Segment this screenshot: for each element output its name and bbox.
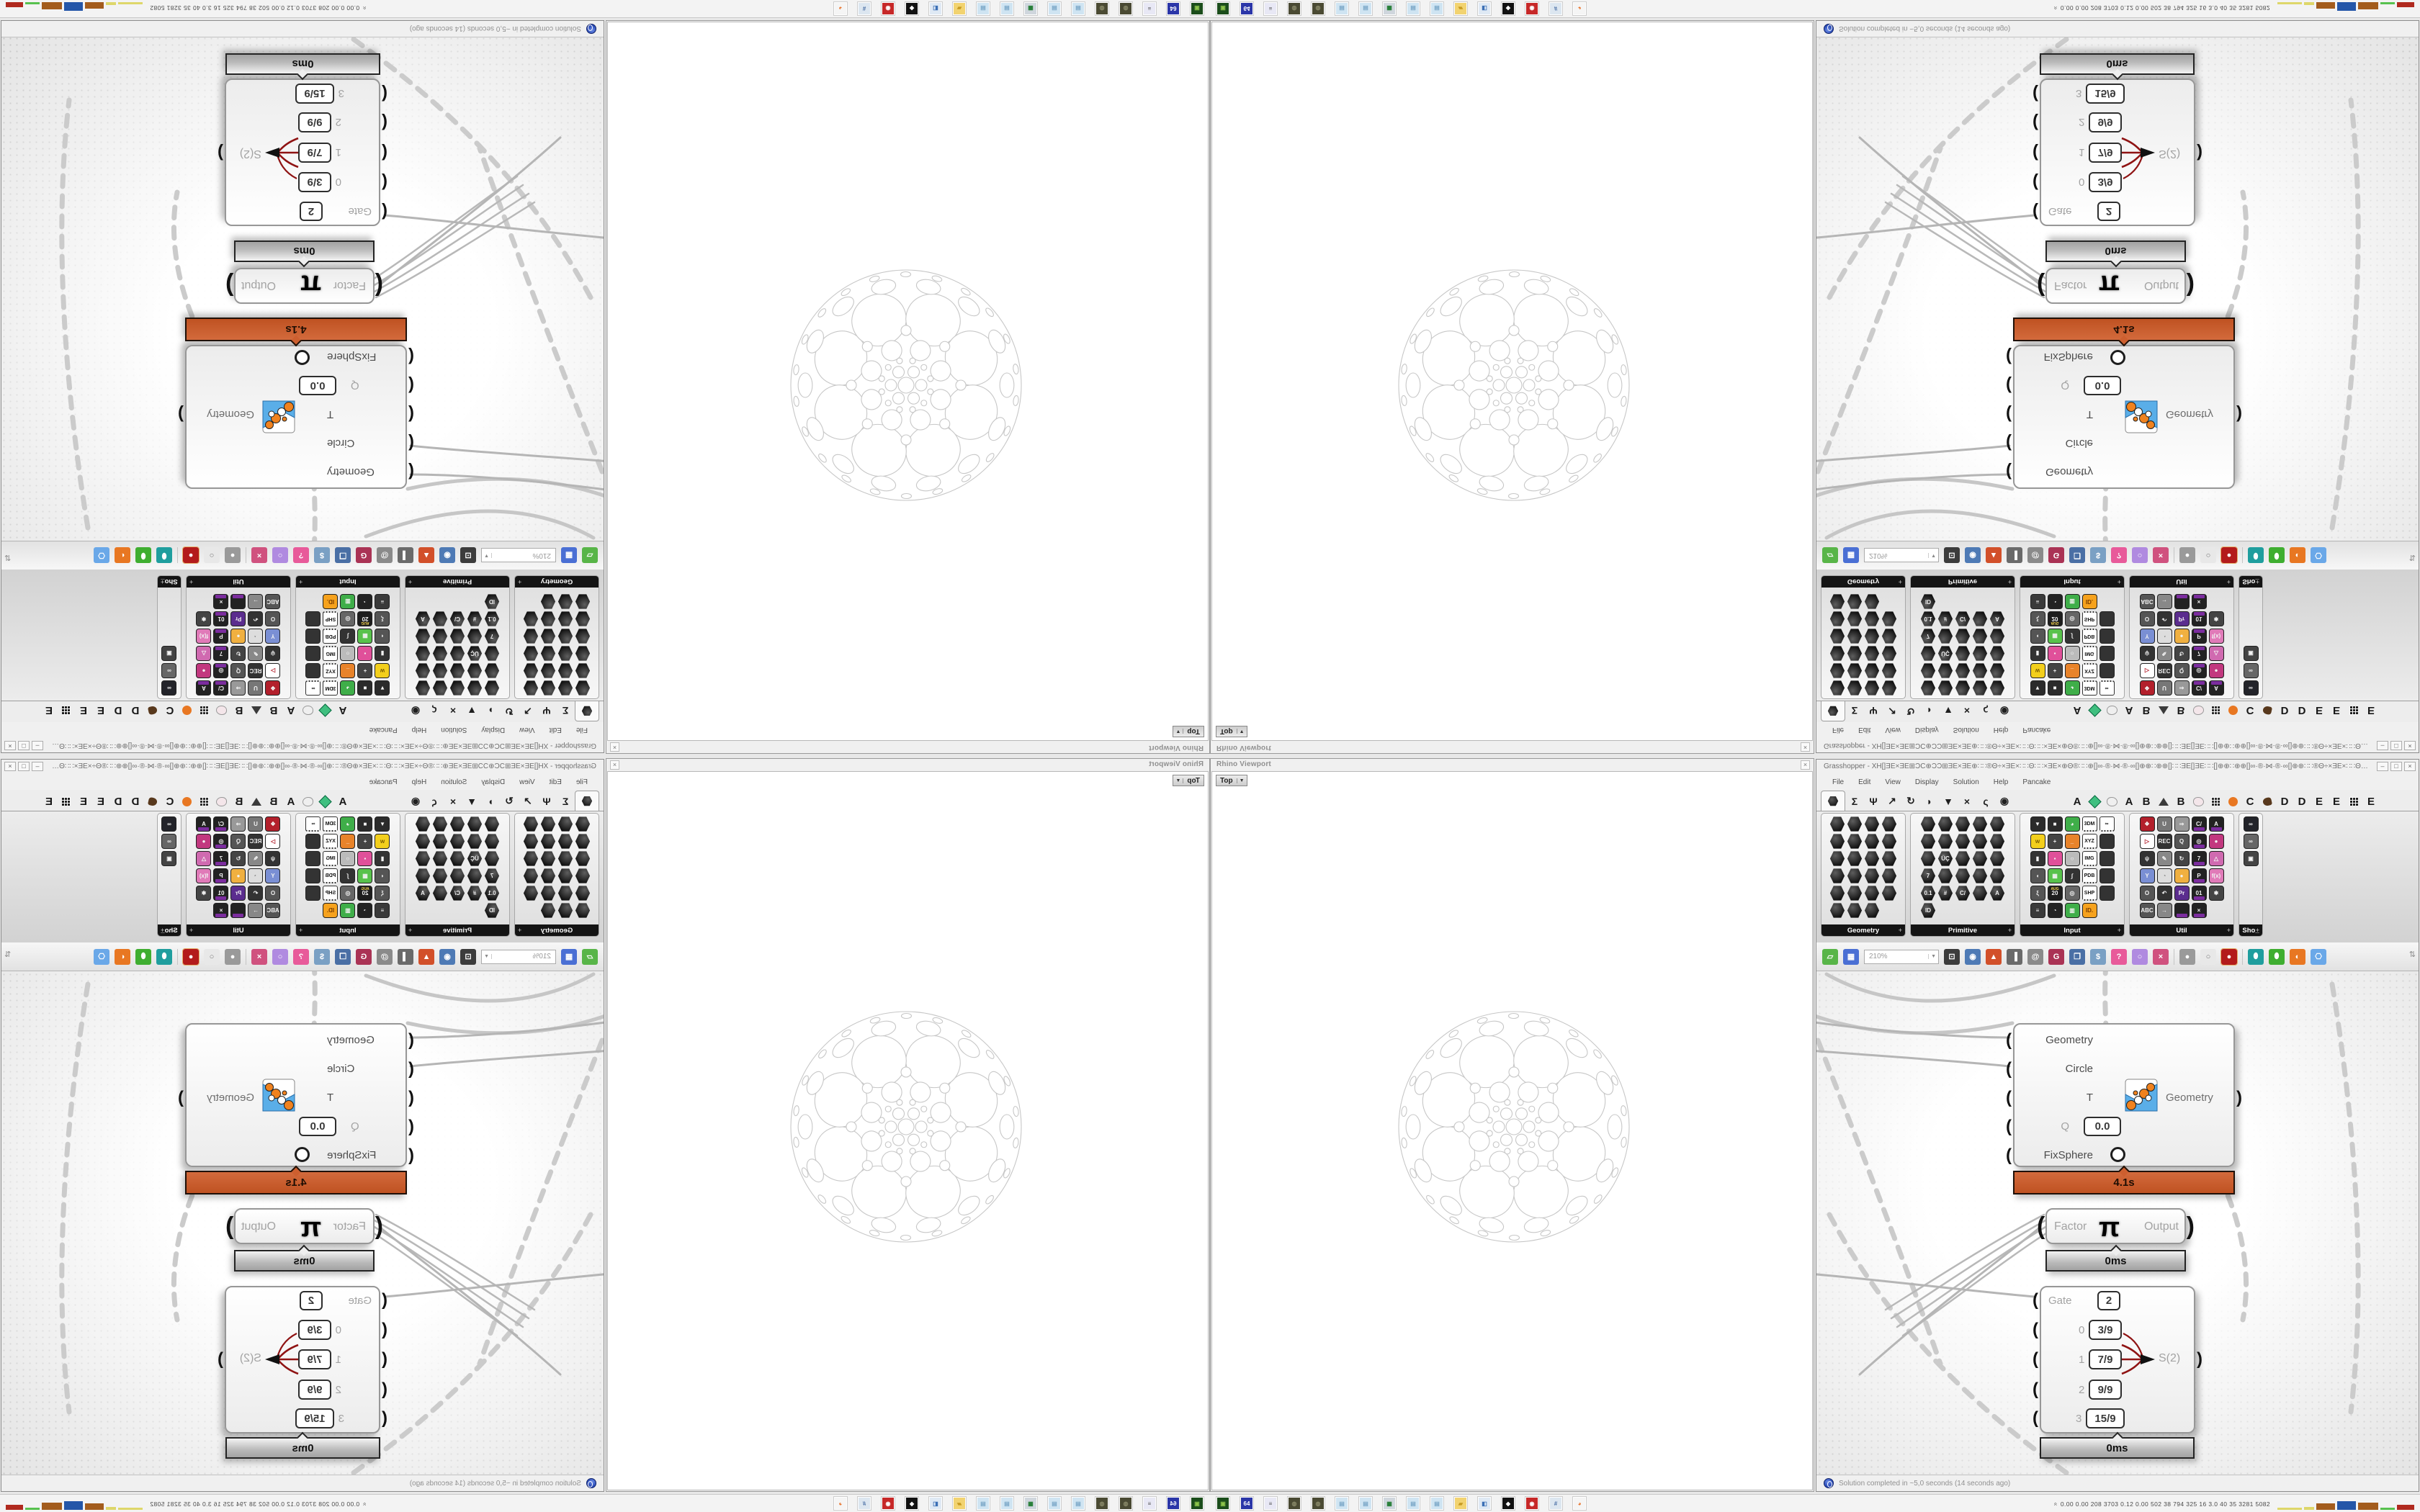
tab-plugin-mountain-icon[interactable] [2155, 795, 2172, 808]
component-icon[interactable]: ↻ [231, 851, 246, 866]
component-icon[interactable] [1882, 629, 1897, 644]
taskbar-monitor-icon[interactable]: ▦ [1023, 1, 1038, 16]
component-icon[interactable]: ◖ [2030, 629, 2045, 644]
component-icon[interactable]: ○ [2065, 646, 2080, 661]
component-icon[interactable] [1847, 903, 1863, 918]
component-icon[interactable]: A [416, 886, 431, 901]
select-green-icon[interactable]: ⬮ [135, 548, 151, 564]
component-icon[interactable] [306, 646, 321, 661]
input-grip-1[interactable]: ( [382, 1351, 387, 1368]
taskbar-notepad3-icon[interactable]: ▤ [1000, 1, 1014, 16]
component-icon[interactable] [1882, 851, 1897, 866]
taskbar-firefox-icon[interactable]: ◕ [1572, 1496, 1587, 1511]
preview-eye-icon[interactable]: ◉ [439, 949, 455, 965]
menu-pancake[interactable]: Pancake [362, 724, 405, 737]
component-icon[interactable] [1973, 629, 1988, 644]
panel-footer-sho[interactable]: Sho_+ [2239, 924, 2262, 936]
input-grip-q[interactable]: ( [2006, 377, 2012, 394]
component-icon[interactable] [1847, 680, 1863, 696]
taskbar-penguin-icon[interactable]: ◆ [905, 1, 919, 16]
component-icon[interactable]: ❖ [2140, 816, 2155, 832]
component-icon[interactable] [433, 834, 448, 849]
save-file-icon[interactable]: ▦ [1843, 949, 1859, 965]
component-icon[interactable] [541, 646, 556, 661]
component-icon[interactable]: Pr [231, 886, 246, 901]
at-icon[interactable]: @ [377, 548, 393, 564]
component-icon[interactable]: → [248, 594, 264, 609]
panel-footer-geometry[interactable]: Geometry+ [1821, 924, 1905, 936]
tab-plugin-d1[interactable]: D [2276, 705, 2293, 717]
preview-off-icon[interactable]: ● [2179, 548, 2195, 564]
tab-transform[interactable]: ς [425, 796, 444, 811]
component-icon[interactable] [524, 834, 539, 849]
tab-plugin-c[interactable]: C [2241, 796, 2259, 808]
component-icon[interactable] [1955, 868, 1971, 883]
component-icon[interactable] [1955, 816, 1971, 832]
component-icon[interactable] [1973, 868, 1988, 883]
component-icon[interactable]: ◔ [2157, 629, 2172, 644]
component-icon[interactable]: ◎ [214, 663, 229, 678]
menu-pancake[interactable]: Pancake [2015, 776, 2058, 788]
component-icon[interactable] [524, 868, 539, 883]
component-icon[interactable]: # [1938, 886, 1953, 901]
taskbar-notepad4-icon[interactable]: ▤ [1430, 1496, 1444, 1511]
component-icon[interactable]: SHP [323, 611, 339, 626]
taskbar-floppy-icon[interactable]: 64 [1240, 1496, 1254, 1511]
mystery-box-icon[interactable]: ? [293, 949, 309, 965]
panel-footer-primitive[interactable]: Primitive+ [1911, 576, 2015, 588]
zoom-extents-icon[interactable]: ⊡ [1944, 949, 1960, 965]
component-icon[interactable] [541, 816, 556, 832]
tab-vector[interactable]: ↗ [1883, 701, 1901, 717]
input-grip-q[interactable]: ( [408, 1118, 414, 1135]
tab-surface[interactable]: ◗ [481, 701, 500, 716]
component-icon[interactable] [541, 629, 556, 644]
component-icon[interactable]: _ [2065, 834, 2080, 849]
component-icon[interactable]: ● [231, 629, 246, 644]
component-icon[interactable]: U [2157, 680, 2172, 696]
component-icon[interactable] [416, 834, 431, 849]
rhino-viewport-titlebar[interactable]: Rhino Viewport × [606, 741, 1209, 753]
component-icon[interactable] [1990, 629, 2005, 644]
output-grip-geometry[interactable]: ) [178, 1089, 184, 1107]
taskbar-app-icon[interactable]: ▣ [1190, 1, 1204, 16]
component-icon[interactable]: △ [2209, 851, 2224, 866]
component-icon[interactable] [558, 834, 573, 849]
output-grip-output[interactable]: ) [2187, 274, 2195, 298]
taskbar-folder-icon[interactable]: ▰ [952, 1, 967, 16]
component-icon[interactable] [524, 680, 539, 696]
input-grip-gate[interactable]: ( [2033, 1292, 2038, 1309]
component-icon[interactable]: f(x) [197, 868, 212, 883]
component-icon[interactable] [575, 594, 591, 609]
component-icon[interactable]: 3DM [323, 816, 339, 832]
component-icon[interactable] [1990, 816, 2005, 832]
lightbulb-icon[interactable]: ○ [272, 949, 288, 965]
component-icon[interactable] [1973, 680, 1988, 696]
component-icon[interactable]: PDB [323, 868, 339, 883]
tab-maths[interactable]: Σ [556, 701, 575, 716]
sketch-flame-icon[interactable]: ▲ [1986, 949, 2002, 965]
component-icon[interactable] [575, 663, 591, 678]
menu-view[interactable]: View [1878, 776, 1908, 788]
component-icon[interactable] [1847, 851, 1863, 866]
component-icon[interactable]: ◔ [358, 903, 373, 918]
viewport-name-dropdown[interactable]: Top ▼ [1216, 775, 1247, 786]
component-icon[interactable] [1973, 816, 1988, 832]
component-icon[interactable]: SHP [2082, 611, 2097, 626]
taskbar-orb1-icon[interactable]: ◍ [1287, 1, 1301, 16]
component-icon[interactable] [558, 903, 573, 918]
component-icon[interactable] [1973, 886, 1988, 901]
tab-plugin-checker-icon[interactable] [2345, 795, 2362, 808]
tab-plugin-b1[interactable]: B [2138, 705, 2155, 717]
component-icon[interactable] [2099, 663, 2115, 678]
lightbulb-icon[interactable]: ○ [2132, 949, 2148, 965]
component-icon[interactable]: 7 [214, 851, 229, 866]
component-icon[interactable] [1882, 680, 1897, 696]
component-icon[interactable] [524, 611, 539, 626]
taskbar-notepad2-icon[interactable]: ▤ [1358, 1, 1373, 16]
component-icon[interactable]: ✎ [248, 646, 264, 661]
component-icon[interactable] [433, 646, 448, 661]
input-grip-3[interactable]: ( [2033, 1410, 2038, 1427]
grasshopper-canvas[interactable]: ( ( ( ( ( Geometry Circle T Q 0.0 FixSph… [1816, 37, 2419, 541]
select-teal-icon[interactable]: ⬮ [2248, 548, 2264, 564]
component-icon[interactable] [231, 903, 246, 918]
component-icon[interactable] [558, 868, 573, 883]
component-icon[interactable]: O [266, 886, 281, 901]
component-icon[interactable]: ◖ [375, 629, 390, 644]
component-icon[interactable]: ❖ [266, 816, 281, 832]
menu-display[interactable]: Display [1908, 776, 1946, 788]
node-stream-filter-component[interactable]: ( ( ( ( ( Gate 2 0 3/9 1 7/9 2 9/9 3 [225, 1286, 380, 1434]
component-icon[interactable]: × [2192, 594, 2207, 609]
component-icon[interactable]: ξ [375, 611, 390, 626]
component-icon[interactable]: ■ [358, 680, 373, 696]
canvas-zoom-select[interactable]: 210%▼ [1864, 950, 1939, 964]
component-icon[interactable]: P [214, 629, 229, 644]
component-icon[interactable]: ▦ [2048, 868, 2063, 883]
menu-edit[interactable]: Edit [542, 776, 569, 788]
component-icon[interactable]: × [2192, 903, 2207, 918]
component-icon[interactable]: ● [2174, 868, 2190, 883]
component-icon[interactable]: ∞ [162, 816, 177, 832]
tab-plugin-e1[interactable]: E [92, 796, 109, 808]
component-icon[interactable] [485, 680, 500, 696]
component-icon[interactable]: ▪ [2048, 646, 2063, 661]
component-icon[interactable] [1990, 646, 2005, 661]
component-icon[interactable] [1830, 903, 1845, 918]
component-icon[interactable]: w [2030, 834, 2045, 849]
component-icon[interactable]: C/ [2192, 816, 2207, 832]
component-icon[interactable]: Y [2140, 868, 2155, 883]
component-icon[interactable]: ∞ [162, 680, 177, 696]
component-icon[interactable]: → [248, 903, 264, 918]
component-icon[interactable]: w [375, 834, 390, 849]
component-icon[interactable] [1921, 663, 1936, 678]
input-grip-3[interactable]: ( [2033, 85, 2038, 102]
tab-intersect[interactable]: × [1958, 796, 1976, 811]
output-grip-output[interactable]: ) [225, 274, 233, 298]
sketch-flame-icon[interactable]: ▲ [1986, 548, 2002, 564]
component-icon[interactable]: ∫ [341, 868, 356, 883]
window-icon[interactable]: ❐ [2069, 949, 2085, 965]
component-icon[interactable]: ▮ [375, 851, 390, 866]
component-icon[interactable]: 01 [214, 886, 229, 901]
taskbar-folder-icon[interactable]: ▰ [1453, 1496, 1468, 1511]
panel-footer-geometry[interactable]: Geometry+ [1821, 576, 1905, 588]
component-icon[interactable] [1847, 868, 1863, 883]
grasshopper-canvas[interactable]: ( ( ( ( ( Geometry Circle T Q 0.0 FixSph… [1, 971, 604, 1475]
component-icon[interactable] [485, 816, 500, 832]
lightbulb-icon[interactable]: ○ [272, 548, 288, 564]
component-icon[interactable]: ● [231, 868, 246, 883]
preview-shaded-icon[interactable]: ● [2221, 949, 2237, 965]
component-icon[interactable]: ▼ [2030, 816, 2045, 832]
taskbar-calculator-icon[interactable]: # [1549, 1496, 1563, 1511]
close-icon[interactable]: × [4, 762, 16, 771]
tab-plugin-a1[interactable]: A [2069, 796, 2086, 808]
component-icon[interactable]: ◎ [2065, 611, 2080, 626]
component-icon[interactable]: + [2048, 663, 2063, 678]
tab-mesh[interactable]: ▼ [462, 796, 481, 811]
component-icon[interactable] [1882, 611, 1897, 626]
input-grip-geometry[interactable]: ( [408, 1032, 414, 1049]
q-value-box[interactable]: 0.0 [299, 376, 336, 395]
tab-sets[interactable]: Ψ [1864, 796, 1883, 811]
component-icon[interactable] [306, 886, 321, 901]
tab-plugin-shield-icon[interactable] [2190, 795, 2207, 808]
component-icon[interactable] [2099, 868, 2115, 883]
component-icon[interactable]: XYZ [323, 663, 339, 678]
component-icon[interactable]: ↶ [2157, 886, 2172, 901]
taskbar-notepad2-icon[interactable]: ▤ [1047, 1496, 1062, 1511]
fixsphere-toggle[interactable] [295, 350, 310, 365]
component-icon[interactable]: ↶ [248, 611, 264, 626]
mystery-box-icon[interactable]: ? [2111, 949, 2127, 965]
component-icon[interactable]: ABC [2140, 903, 2155, 918]
menu-file[interactable]: File [569, 776, 595, 788]
component-icon[interactable] [1955, 680, 1971, 696]
taskbar-badge-icon[interactable]: ◉ [881, 1, 895, 16]
component-icon[interactable] [1865, 903, 1880, 918]
component-icon[interactable] [524, 629, 539, 644]
taskbar-notepad3-icon[interactable]: ▤ [1406, 1, 1420, 16]
component-icon[interactable]: ∞ [2244, 680, 2259, 696]
panel-footer-input[interactable]: Input+ [296, 576, 400, 588]
component-icon[interactable] [558, 611, 573, 626]
component-icon[interactable]: U [248, 680, 264, 696]
tray-chevron-icon[interactable]: « [361, 1502, 368, 1506]
panel-footer-primitive[interactable]: Primitive+ [405, 924, 509, 936]
preview-wire-icon[interactable]: ○ [204, 548, 220, 564]
group-blue-icon[interactable]: ⎔ [94, 949, 109, 965]
rhino-viewport[interactable]: Top ▼ [607, 771, 1209, 1490]
component-icon[interactable] [575, 834, 591, 849]
component-icon[interactable]: ▮ [2030, 646, 2045, 661]
component-icon[interactable]: ● [2209, 663, 2224, 678]
node-fixsphere-component[interactable]: ( ( ( ( ( Geometry Circle T Q 0.0 FixSph… [2013, 1023, 2235, 1167]
panel-footer-util[interactable]: Util+ [2130, 576, 2233, 588]
input-grip-geometry[interactable]: ( [2006, 1032, 2012, 1049]
component-icon[interactable]: ◎ [341, 886, 356, 901]
taskbar-notepad1-icon[interactable]: ▤ [1335, 1, 1349, 16]
component-icon[interactable] [1847, 629, 1863, 644]
tab-plugin-blob-icon[interactable] [300, 704, 317, 717]
component-icon[interactable] [467, 868, 483, 883]
grasshopper-titlebar[interactable]: Grasshopper - XH[]ƎE×ƎE⊞ƆC⊕ƆƆ⊞ƎE×ƎE⊕∷∷®Θ… [1, 738, 604, 752]
component-icon[interactable]: SHP [2082, 886, 2097, 901]
component-icon[interactable] [450, 834, 465, 849]
lightbulb-icon[interactable]: ○ [2132, 548, 2148, 564]
close-icon[interactable]: × [1801, 760, 1810, 770]
tab-plugin-dot-icon[interactable] [2224, 795, 2241, 808]
component-icon[interactable] [416, 629, 431, 644]
tab-plugin-b2[interactable]: B [2172, 796, 2190, 808]
taskbar-firefox-icon[interactable]: ◕ [833, 1, 848, 16]
panel-footer-geometry[interactable]: Geometry+ [515, 576, 599, 588]
tab-curve[interactable]: ↻ [1901, 795, 1920, 811]
component-icon[interactable] [1921, 680, 1936, 696]
tab-surface[interactable]: ◗ [1920, 701, 1939, 716]
component-icon[interactable]: ✱ [197, 886, 212, 901]
tab-plugin-e1[interactable]: E [2311, 796, 2328, 808]
save-file-icon[interactable]: ▦ [561, 949, 577, 965]
component-icon[interactable]: U [2157, 816, 2172, 832]
fixsphere-toggle[interactable] [2110, 1147, 2125, 1162]
input-grip-2[interactable]: ( [2033, 1381, 2038, 1398]
component-icon[interactable]: Pr [231, 611, 246, 626]
menu-display[interactable]: Display [474, 724, 512, 737]
tab-plugin-a1[interactable]: A [2069, 705, 2086, 717]
menu-pancake[interactable]: Pancake [2015, 724, 2058, 737]
component-icon[interactable]: U [248, 816, 264, 832]
tab-plugin-checker-icon[interactable] [58, 795, 75, 808]
component-icon[interactable] [1865, 663, 1880, 678]
component-icon[interactable]: ABC [266, 594, 281, 609]
component-icon[interactable] [1973, 663, 1988, 678]
component-icon[interactable]: ▷ [266, 834, 281, 849]
tab-plugin-a1[interactable]: A [334, 705, 351, 717]
input-grip-1[interactable]: ( [2033, 1351, 2038, 1368]
preview-eye-icon[interactable]: ◉ [1965, 949, 1981, 965]
component-icon[interactable] [467, 629, 483, 644]
component-icon[interactable] [231, 594, 246, 609]
component-icon[interactable] [1938, 834, 1953, 849]
component-icon[interactable]: ∞ [2244, 663, 2259, 678]
component-icon[interactable]: C/ [450, 886, 465, 901]
component-icon[interactable]: 01 [2192, 611, 2207, 626]
component-icon[interactable] [467, 834, 483, 849]
tab-plugin-b2[interactable]: B [230, 705, 248, 717]
component-icon[interactable] [575, 680, 591, 696]
component-icon[interactable]: ✎ [248, 851, 264, 866]
gha-icon[interactable]: G [356, 548, 372, 564]
component-icon[interactable] [433, 629, 448, 644]
component-icon[interactable]: IMG [323, 851, 339, 866]
component-icon[interactable]: A [197, 816, 212, 832]
component-icon[interactable]: ↻ [2174, 646, 2190, 661]
input-grip-circle[interactable]: ( [2006, 1061, 2012, 1078]
component-icon[interactable]: ▦ [358, 629, 373, 644]
component-icon[interactable]: 7 [485, 629, 500, 644]
component-icon[interactable]: ◔ [2048, 594, 2063, 609]
preview-off-icon[interactable]: ● [2179, 949, 2195, 965]
component-icon[interactable]: 0.1 [485, 611, 500, 626]
select-green-icon[interactable]: ⬮ [135, 949, 151, 965]
component-icon[interactable]: # [1938, 611, 1953, 626]
tab-plugin-a2[interactable]: A [2120, 796, 2138, 808]
tab-plugin-blob-icon[interactable] [2103, 704, 2120, 717]
menu-solution[interactable]: Solution [434, 724, 474, 737]
tab-plugin-b1[interactable]: B [265, 705, 282, 717]
component-icon[interactable] [558, 663, 573, 678]
component-icon[interactable]: △ [197, 851, 212, 866]
taskbar-app-icon[interactable]: ▣ [1190, 1496, 1204, 1511]
component-icon[interactable]: ◖ [375, 868, 390, 883]
component-icon[interactable]: ✱ [2209, 611, 2224, 626]
viewport-name-dropdown[interactable]: Top ▼ [1173, 775, 1204, 786]
component-icon[interactable] [1990, 851, 2005, 866]
q-value-box[interactable]: 0.0 [2084, 1117, 2121, 1136]
at-icon[interactable]: @ [2027, 949, 2043, 965]
component-icon[interactable] [1830, 868, 1845, 883]
component-icon[interactable]: ● [2209, 834, 2224, 849]
tab-plugin-e3[interactable]: E [2362, 705, 2380, 717]
component-icon[interactable] [1865, 594, 1880, 609]
taskbar-monitor-icon[interactable]: ▦ [1023, 1496, 1038, 1511]
save-file-icon[interactable]: ▦ [1843, 548, 1859, 564]
tab-intersect[interactable]: × [444, 796, 462, 811]
tab-transform[interactable]: ς [425, 701, 444, 716]
component-icon[interactable]: ▪ [358, 646, 373, 661]
node-pi-component[interactable]: ( Factor π Output ) [2045, 1208, 2186, 1244]
menu-help[interactable]: Help [1986, 724, 2016, 737]
component-icon[interactable]: Q [2174, 834, 2190, 849]
tab-params[interactable] [575, 701, 599, 721]
canvas-zoom-select[interactable]: 210%▼ [481, 950, 556, 964]
component-icon[interactable]: ■ [358, 816, 373, 832]
component-icon[interactable] [467, 663, 483, 678]
component-icon[interactable]: C/ [1955, 611, 1971, 626]
menu-file[interactable]: File [1825, 724, 1851, 737]
select-teal-icon[interactable]: ⬮ [2248, 949, 2264, 965]
menu-edit[interactable]: Edit [542, 724, 569, 737]
component-icon[interactable] [485, 663, 500, 678]
component-icon[interactable] [1990, 834, 2005, 849]
component-icon[interactable]: 7 [1921, 629, 1936, 644]
component-icon[interactable]: ⇒ [2174, 680, 2190, 696]
node-fixsphere-component[interactable]: ( ( ( ( ( Geometry Circle T Q 0.0 FixSph… [185, 1023, 407, 1167]
tab-plugin-mountain-icon[interactable] [248, 704, 265, 717]
component-icon[interactable] [541, 663, 556, 678]
component-icon[interactable]: Q [2174, 663, 2190, 678]
tab-plugin-dot-icon[interactable] [179, 704, 196, 717]
component-icon[interactable]: ◕ [2065, 816, 2080, 832]
component-icon[interactable] [2099, 886, 2115, 901]
component-icon[interactable]: # [467, 611, 483, 626]
grasshopper-titlebar[interactable]: Grasshopper - XH[]ƎE×ƎE⊞ƆC⊕ƆƆ⊞ƎE×ƎE⊕∷∷®Θ… [1816, 738, 2419, 752]
close-icon[interactable]: × [610, 760, 619, 770]
menu-file[interactable]: File [569, 724, 595, 737]
component-icon[interactable] [467, 816, 483, 832]
component-icon[interactable] [1973, 834, 1988, 849]
taskbar-app-icon[interactable]: ▣ [1216, 1, 1230, 16]
component-icon[interactable] [1865, 816, 1880, 832]
component-icon[interactable]: PDB [323, 629, 339, 644]
taskbar-notepad2-icon[interactable]: ▤ [1358, 1496, 1373, 1511]
